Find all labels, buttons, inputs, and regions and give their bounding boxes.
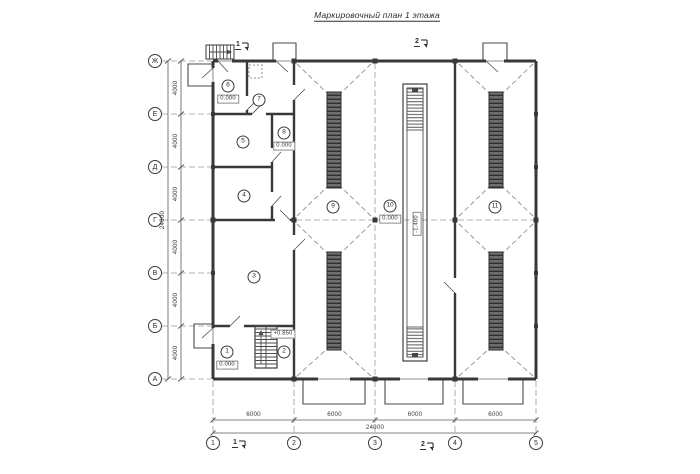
- exterior-stair: [206, 45, 234, 59]
- dim-bottom-1: 6000: [246, 412, 261, 418]
- axis-row-v: В: [148, 266, 162, 280]
- elevation-room-8: 0.000: [273, 142, 295, 151]
- shaft-dashed-box: [249, 65, 262, 78]
- dim-bottom-total: 24000: [366, 425, 384, 431]
- room-circle-7: 7: [253, 94, 266, 107]
- elevation-pit: -1.400: [413, 212, 422, 236]
- dim-left-6: 4000: [173, 345, 179, 360]
- dim-left-4: 4000: [173, 239, 179, 254]
- dim-bottom-2: 6000: [327, 412, 342, 418]
- axis-col-4: 4: [448, 436, 462, 450]
- section-mark-1-top: 1: [235, 41, 251, 51]
- dim-left-5: 4000: [173, 292, 179, 307]
- dim-left-3: 4000: [173, 186, 179, 201]
- dim-left-2: 4000: [173, 133, 179, 148]
- section-mark-2-top: 2: [414, 38, 430, 48]
- room-circle-9: 9: [327, 201, 340, 214]
- axis-col-5: 5: [529, 436, 543, 450]
- dim-bottom-3: 6000: [408, 412, 423, 418]
- axis-row-zh: Ж: [148, 54, 162, 68]
- axis-row-d: Д: [148, 160, 162, 174]
- room-circle-1: 1: [221, 346, 234, 359]
- dim-left-total: 24000: [160, 211, 166, 229]
- room-circle-10: 10: [384, 200, 397, 213]
- axis-row-a: А: [148, 372, 162, 386]
- section-mark-2-bottom: 2: [420, 441, 436, 451]
- section-arrow-icon: [420, 38, 430, 48]
- axis-row-e: Е: [148, 107, 162, 121]
- floor-plan-sheet: Маркировочный план 1 этажа Ж Е Д Г В Б А…: [0, 0, 700, 474]
- room-circle-4: 4: [238, 190, 251, 203]
- dim-left-1: 4000: [173, 80, 179, 95]
- elevation-room-10: 0.000: [379, 215, 401, 224]
- elevation-room-2: +0.850: [270, 330, 295, 339]
- room-circle-8: 8: [278, 127, 291, 140]
- room-circle-3: 3: [248, 271, 261, 284]
- axis-col-2: 2: [287, 436, 301, 450]
- section-arrow-icon: [238, 439, 248, 449]
- plan-linework: [0, 0, 700, 474]
- room-circle-11: 11: [489, 201, 502, 214]
- section-mark-1-bottom: 1: [232, 439, 248, 449]
- section-arrow-icon: [426, 441, 436, 451]
- dim-bottom-4: 6000: [488, 412, 503, 418]
- axis-col-1: 1: [206, 436, 220, 450]
- room-circle-6: 6: [222, 80, 235, 93]
- room-circle-2: 2: [278, 346, 291, 359]
- axis-row-b: Б: [148, 319, 162, 333]
- elevation-room-6: 0.000: [217, 95, 239, 104]
- section-arrow-icon: [241, 41, 251, 51]
- room-circle-5: 5: [237, 136, 250, 149]
- axis-col-3: 3: [368, 436, 382, 450]
- elevation-room-1: 0.000: [216, 361, 238, 370]
- drawing-title: Маркировочный план 1 этажа: [314, 11, 440, 22]
